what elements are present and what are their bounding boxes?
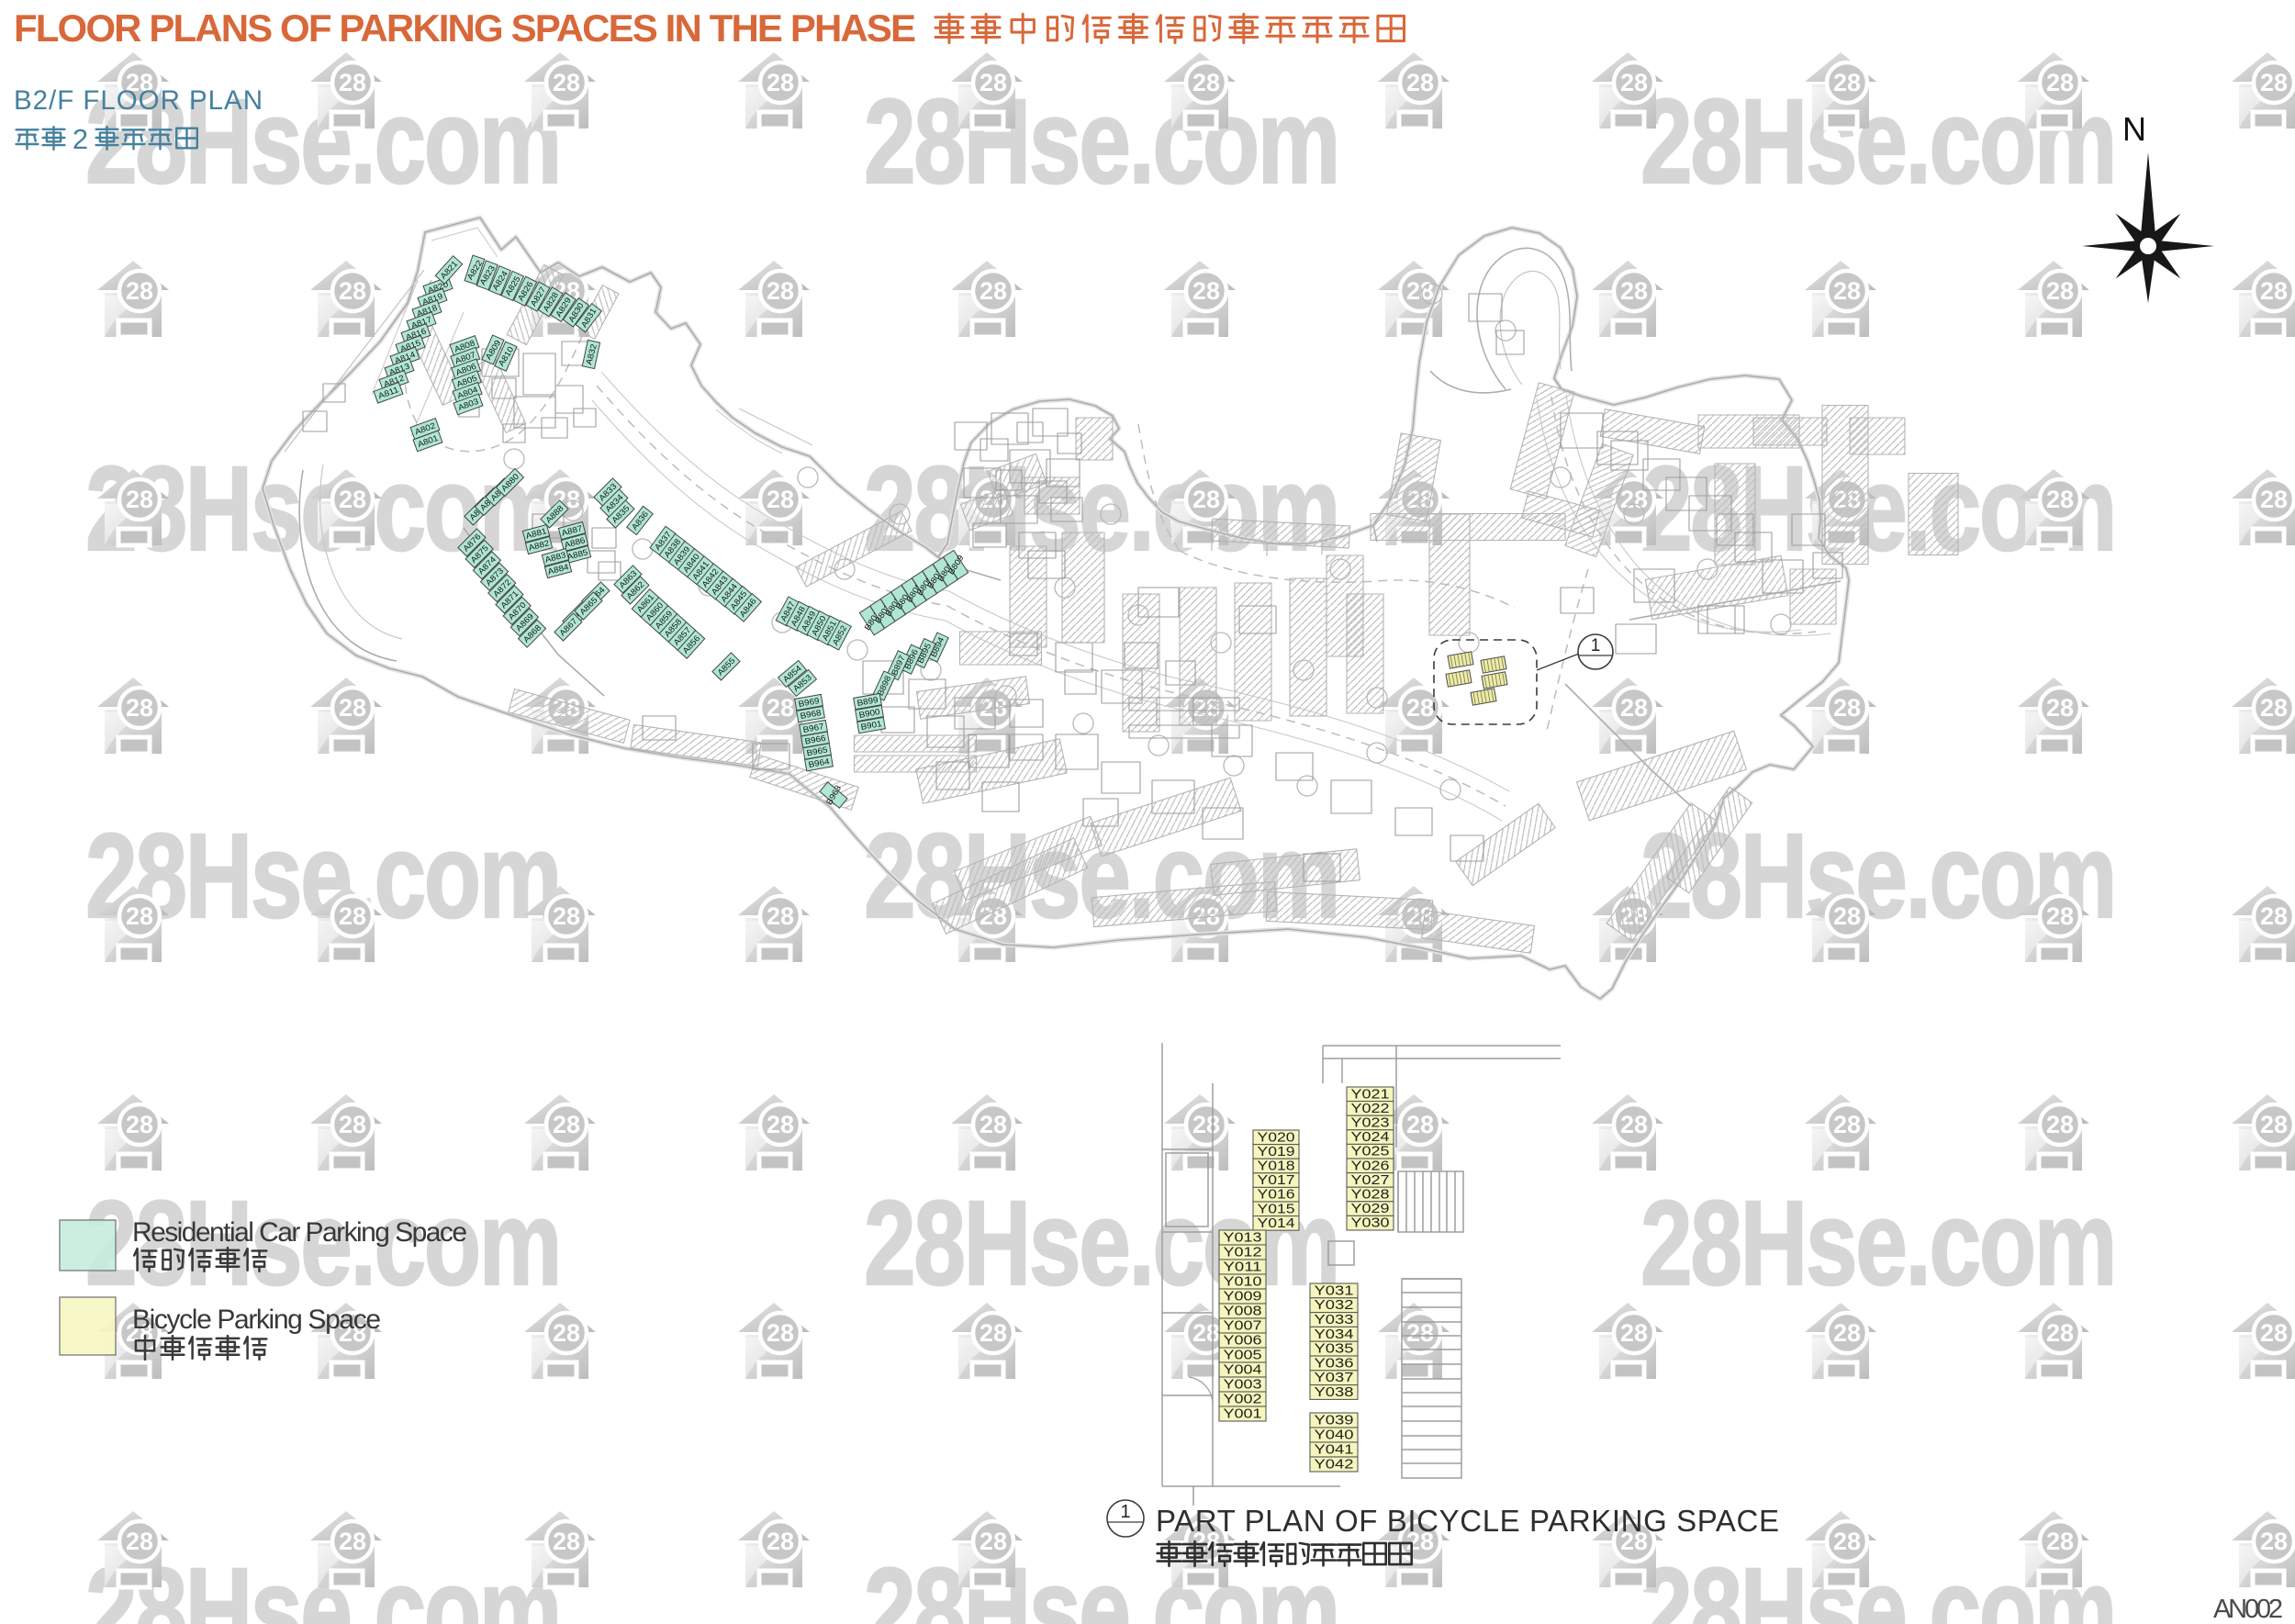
svg-text:Y008: Y008 — [1224, 1305, 1262, 1319]
svg-text:Y022: Y022 — [1351, 1102, 1390, 1116]
svg-text:Y003: Y003 — [1224, 1378, 1262, 1393]
svg-text:Y020: Y020 — [1258, 1130, 1295, 1145]
svg-text:Y028: Y028 — [1351, 1188, 1390, 1203]
svg-text:Y042: Y042 — [1315, 1458, 1354, 1473]
svg-text:Y019: Y019 — [1258, 1145, 1295, 1159]
svg-text:Y034: Y034 — [1315, 1327, 1354, 1342]
svg-text:Y011: Y011 — [1224, 1260, 1262, 1275]
svg-text:Y017: Y017 — [1258, 1173, 1295, 1188]
svg-text:Y007: Y007 — [1224, 1319, 1262, 1334]
svg-text:Residential Car Parking Space: Residential Car Parking Space — [132, 1217, 467, 1248]
svg-text:Y033: Y033 — [1315, 1313, 1354, 1327]
svg-text:B2/F FLOOR PLAN: B2/F FLOOR PLAN — [14, 85, 263, 116]
svg-text:28Hse.com: 28Hse.com — [864, 73, 1338, 208]
svg-text:28Hse.com: 28Hse.com — [864, 1542, 1338, 1624]
svg-text:Y006: Y006 — [1224, 1334, 1262, 1349]
svg-text:Y041: Y041 — [1315, 1443, 1354, 1458]
svg-text:2: 2 — [73, 123, 88, 155]
svg-text:Y026: Y026 — [1351, 1159, 1390, 1173]
svg-text:Y004: Y004 — [1224, 1363, 1262, 1378]
svg-text:Y030: Y030 — [1351, 1216, 1390, 1231]
svg-text:Y023: Y023 — [1351, 1116, 1390, 1131]
svg-text:Y021: Y021 — [1351, 1087, 1390, 1102]
svg-text:1: 1 — [1591, 636, 1601, 655]
svg-text:Y013: Y013 — [1224, 1231, 1262, 1246]
svg-text:Y036: Y036 — [1315, 1356, 1354, 1371]
svg-text:FLOOR PLANS OF PARKING SPACES: FLOOR PLANS OF PARKING SPACES IN THE PHA… — [14, 6, 916, 50]
svg-text:Y001: Y001 — [1224, 1407, 1262, 1422]
svg-text:Y031: Y031 — [1315, 1283, 1354, 1298]
svg-text:Y029: Y029 — [1351, 1202, 1390, 1216]
svg-text:Y024: Y024 — [1351, 1130, 1390, 1145]
svg-text:Y027: Y027 — [1351, 1173, 1390, 1188]
svg-text:Y037: Y037 — [1315, 1371, 1354, 1385]
svg-text:Y009: Y009 — [1224, 1290, 1262, 1305]
svg-text:Y015: Y015 — [1258, 1202, 1295, 1216]
svg-text:Y018: Y018 — [1258, 1159, 1295, 1174]
svg-text:Y040: Y040 — [1315, 1428, 1354, 1443]
svg-text:Y014: Y014 — [1258, 1216, 1295, 1231]
svg-text:Y025: Y025 — [1351, 1145, 1390, 1159]
svg-text:Y039: Y039 — [1315, 1414, 1354, 1428]
svg-text:PART PLAN OF BICYCLE PARKING S: PART PLAN OF BICYCLE PARKING SPACE — [1156, 1504, 1779, 1538]
svg-text:Y010: Y010 — [1224, 1275, 1262, 1290]
svg-text:Y035: Y035 — [1315, 1342, 1354, 1357]
svg-text:Y002: Y002 — [1224, 1393, 1262, 1407]
svg-text:Y032: Y032 — [1315, 1298, 1354, 1313]
svg-text:Y005: Y005 — [1224, 1349, 1262, 1363]
svg-text:1: 1 — [1120, 1502, 1130, 1522]
svg-text:AN002: AN002 — [2213, 1595, 2283, 1624]
svg-text:N: N — [2122, 110, 2146, 148]
svg-text:Y038: Y038 — [1315, 1385, 1354, 1400]
svg-text:Bicycle Parking Space: Bicycle Parking Space — [132, 1305, 381, 1335]
svg-text:28Hse.com: 28Hse.com — [1640, 1175, 2115, 1310]
svg-text:Y016: Y016 — [1258, 1188, 1295, 1203]
svg-text:Y012: Y012 — [1224, 1246, 1262, 1260]
